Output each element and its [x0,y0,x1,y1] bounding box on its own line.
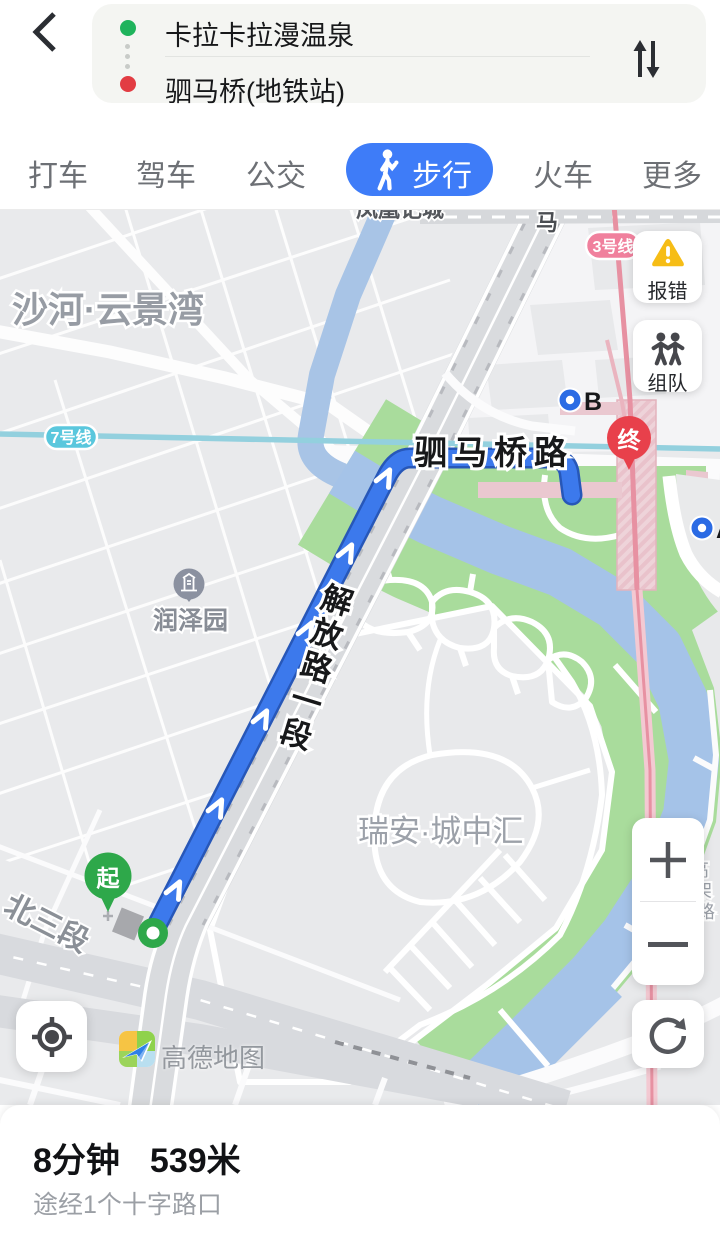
svg-text:A: A [716,516,720,544]
svg-text:起: 起 [97,865,121,891]
svg-text:7号线: 7号线 [51,428,92,447]
svg-text:沙河·云景湾: 沙河·云景湾 [12,289,204,330]
svg-text:驷马桥路: 驷马桥路 [414,434,574,471]
svg-text:瑞安·城中汇: 瑞安·城中汇 [358,814,523,849]
svg-text:终: 终 [618,427,642,453]
svg-text:马: 马 [536,210,558,235]
svg-text:凤凰记城: 凤凰记城 [356,210,444,222]
svg-text:3号线: 3号线 [593,237,634,256]
svg-text:B: B [584,388,602,416]
svg-text:润泽园: 润泽园 [153,606,228,635]
